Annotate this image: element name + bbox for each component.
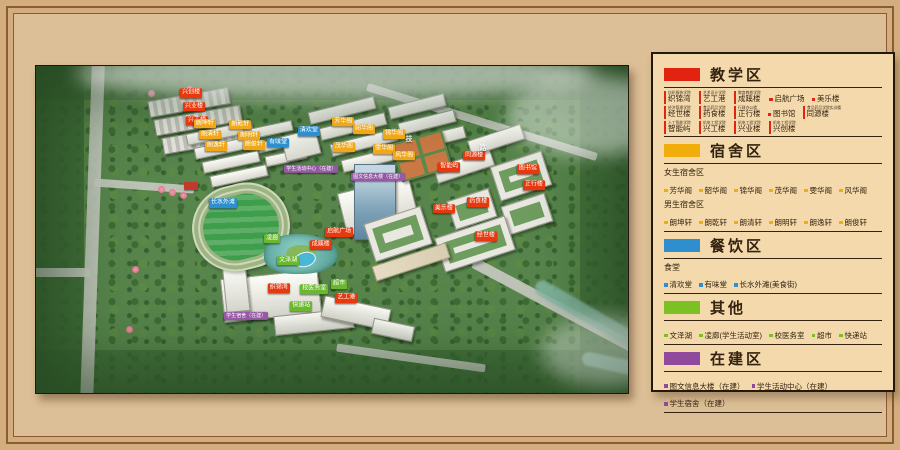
campus-map: 兴创楼兴业楼兴工楼朗坤轩朗乾轩朗清轩朗明轩朗逸轩朗俊轩芳华阁韶华阁锦华阁茂华阁雯… (35, 65, 629, 394)
legend-swatch-other (664, 301, 700, 314)
legend-tagged-row: 人工智能学院智能屿机电工程学院兴工楼机电工程学院兴业楼机电工程学院兴创楼 (664, 121, 882, 134)
legend-panel: 教学区纺织服装学院织锦湾艺术设计学院艺工港教育教养学院成蹊楼启航广场美乐楼经济管… (651, 52, 895, 392)
legend-item-bullet (769, 98, 773, 102)
map-label: 朗明轩 (238, 131, 260, 141)
legend-item: 清欢堂 (664, 279, 692, 290)
legend-item-bullet (664, 189, 668, 193)
legend-item-name: 有味堂 (705, 279, 728, 290)
legend-section-header-teaching: 教学区 (664, 64, 882, 85)
legend-item-caption: 纺织服装学院 (668, 91, 691, 95)
legend-item-bar (664, 91, 666, 104)
legend-item-name: 雯华阁 (810, 185, 833, 196)
legend-item: 朗逸轩 (804, 217, 832, 228)
legend-item: 机电工程学院兴工楼 (699, 121, 727, 134)
map-label: 快递站 (290, 301, 312, 311)
legend-item: 有味堂 (699, 279, 727, 290)
legend-item-col: 行政办公楼正行楼 (738, 106, 761, 119)
legend-item-caption: 机电工程学院 (703, 121, 726, 125)
legend-item-name: 清欢堂 (670, 279, 693, 290)
legend-item-name: 兴工楼 (703, 125, 727, 134)
legend-item-name: 芳华阁 (670, 185, 693, 196)
legend-bullet-list: 图文信息大楼（在建）学生活动中心（在建）学生宿舍（在建） (664, 375, 882, 410)
legend-item-bullet (664, 283, 668, 287)
legend-item-bullet (664, 221, 668, 225)
legend-item-caption: 食品药品学院实训楼 (807, 106, 841, 110)
legend-swatch-construction (664, 352, 700, 365)
map-label: 朗逸轩 (205, 141, 227, 151)
legend-rule (664, 231, 882, 232)
legend-item: 校医务室 (769, 330, 805, 341)
legend-item: 韶华阁 (699, 185, 727, 196)
map-label: 长水外滩 (209, 198, 237, 208)
legend-item-caption: 食品药品学院 (703, 106, 726, 110)
legend-item-bullet (768, 113, 772, 117)
map-label: 芳华阁 (332, 117, 354, 127)
legend-item: 经济管理学院经世楼 (664, 106, 692, 119)
map-label: 清欢堂 (298, 126, 320, 136)
legend-bullet-list: 文泽湖凌廊(学生活动室)校医务室超市快递站 (664, 324, 882, 342)
legend-item-col: 机电工程学院兴业楼 (738, 121, 762, 134)
legend-item: 风华阁 (839, 185, 867, 196)
legend-title-dining: 餐饮区 (710, 235, 764, 256)
legend-title-teaching: 教学区 (710, 64, 764, 85)
legend-item-bar (734, 106, 736, 119)
map-label: 兴业楼 (183, 102, 205, 112)
legend-item-name: 韶华阁 (705, 185, 728, 196)
legend-item-name: 成蹊楼 (738, 95, 762, 104)
legend-item-nm-wrap: 图书馆 (768, 110, 796, 119)
legend-item: 朗乾轩 (699, 217, 727, 228)
legend-item-name: 校医务室 (775, 330, 805, 341)
legend-title-dorm: 宿舍区 (710, 140, 764, 161)
legend-item-bar (769, 121, 771, 134)
legend-item-caption: 行政办公楼 (738, 106, 759, 110)
map-label: 朗清轩 (199, 130, 221, 140)
legend-item-bullet (804, 189, 808, 193)
map-label: 正行楼 (523, 180, 545, 190)
legend-item-col: 图书馆 (768, 110, 796, 119)
legend-item-bullet (812, 98, 816, 102)
map-label: 图书馆 (517, 164, 539, 174)
legend-item-name: 学生宿舍（在建） (670, 398, 730, 409)
legend-item-bar (699, 106, 701, 119)
legend-item-bullet (664, 334, 668, 338)
map-label: 锦华阁 (383, 129, 405, 139)
legend-item-name: 图书馆 (773, 110, 796, 119)
legend-item-bar (734, 91, 736, 104)
legend-item-name: 朗逸轩 (810, 217, 833, 228)
legend-item: 食品药品学院药食楼 (699, 106, 727, 119)
legend-item-bullet (699, 334, 703, 338)
legend-item: 图文信息大楼（在建） (664, 381, 745, 392)
legend-item-name: 智能屿 (668, 125, 692, 134)
road-name-char: 路 (479, 143, 486, 153)
legend-item-bullet (839, 221, 843, 225)
legend-item-bullet (699, 221, 703, 225)
legend-item-col: 教育教养学院成蹊楼 (738, 91, 762, 104)
legend-item-name: 正行楼 (738, 110, 761, 119)
map-label: 艺工港 (335, 293, 357, 303)
legend-item-name: 长水外滩(美食街) (740, 279, 798, 290)
legend-swatch-dorm (664, 144, 700, 157)
legend-item-bullet (839, 334, 843, 338)
legend-item-bullet (839, 189, 843, 193)
legend-title-other: 其他 (710, 297, 746, 318)
legend-item-caption: 艺术设计学院 (703, 91, 726, 95)
legend-item-bullet (804, 221, 808, 225)
legend-item-bullet (752, 384, 756, 388)
legend-swatch-teaching (664, 68, 700, 81)
map-label: 织锦湾 (268, 283, 290, 293)
legend-item: 文泽湖 (664, 330, 692, 341)
map-label: 凌廊 (264, 234, 280, 244)
legend-swatch-dining (664, 239, 700, 252)
legend-item-col: 人工智能学院智能屿 (668, 121, 692, 134)
legend-item-caption: 经济管理学院 (668, 106, 691, 110)
legend-item-name: 朗乾轩 (705, 217, 728, 228)
legend-item-name: 织锦湾 (668, 95, 692, 104)
legend-item-col: 纺织服装学院织锦湾 (668, 91, 692, 104)
legend-item-col: 美乐楼 (812, 95, 840, 104)
legend-item-name: 超市 (817, 330, 832, 341)
legend-item: 艺术设计学院艺工港 (699, 91, 727, 104)
map-label: 朗坤轩 (194, 119, 216, 129)
legend-item: 启航广场 (769, 95, 805, 104)
legend-bullet-list: 芳华阁韶华阁锦华阁茂华阁雯华阁风华阁 (664, 179, 882, 197)
legend-item-name: 茂华阁 (775, 185, 798, 196)
legend-section-header-construction: 在建区 (664, 348, 882, 369)
legend-item-bar (664, 121, 666, 134)
legend-item-bullet (664, 384, 668, 388)
legend-section-header-dining: 餐饮区 (664, 235, 882, 256)
legend-item: 教育教养学院成蹊楼 (734, 91, 762, 104)
legend-rule (664, 344, 882, 345)
legend-rule (664, 320, 882, 321)
legend-item-bar (664, 106, 666, 119)
legend-tagged-row: 纺织服装学院织锦湾艺术设计学院艺工港教育教养学院成蹊楼启航广场美乐楼 (664, 91, 882, 104)
map-label: 超市 (331, 279, 347, 289)
map-label: 兴创楼 (180, 88, 202, 98)
legend-item-bullet (769, 221, 773, 225)
map-label: 有味堂 (267, 138, 289, 148)
legend-item-col: 经济管理学院经世楼 (668, 106, 692, 119)
legend-item-caption: 机电工程学院 (773, 121, 796, 125)
map-label: 雯华阁 (373, 144, 395, 154)
legend-item-bar (734, 121, 736, 134)
map-label: 学生宿舍（在建） (224, 312, 268, 320)
map-label: 韶华阁 (353, 124, 375, 134)
legend-item-name: 朗坤轩 (670, 217, 693, 228)
legend-item: 纺织服装学院织锦湾 (664, 91, 692, 104)
legend-item: 美乐楼 (812, 95, 840, 104)
legend-item-name: 风华阁 (845, 185, 868, 196)
legend-item: 朗俊轩 (839, 217, 867, 228)
map-label: 经世楼 (475, 231, 497, 241)
map-label: 启航广场 (325, 227, 353, 237)
legend-item-bar (699, 91, 701, 104)
legend-item-nm-wrap: 美乐楼 (812, 95, 840, 104)
legend-group-label: 女生宿舍区 (664, 167, 882, 178)
legend-bullet-list: 朗坤轩朗乾轩朗清轩朗明轩朗逸轩朗俊轩 (664, 211, 882, 229)
road-name-char: 技 (405, 134, 412, 144)
legend-section-header-dorm: 宿舍区 (664, 140, 882, 161)
legend-item-bullet (812, 334, 816, 338)
legend-item-bullet (734, 189, 738, 193)
legend-item-name: 药食楼 (703, 110, 727, 119)
legend-item: 机电工程学院兴业楼 (734, 121, 762, 134)
legend-item-caption: 教育教养学院 (738, 91, 761, 95)
legend-item: 机电工程学院兴创楼 (769, 121, 797, 134)
map-label: 药食楼 (467, 197, 489, 207)
legend-item: 学生活动中心（在建） (752, 381, 833, 392)
legend-item: 雯华阁 (804, 185, 832, 196)
legend-item: 朗坤轩 (664, 217, 692, 228)
legend-item-nm-wrap: 启航广场 (769, 95, 805, 104)
legend-item-name: 经世楼 (668, 110, 692, 119)
legend-item-name: 文泽湖 (670, 330, 693, 341)
legend-item: 朗明轩 (769, 217, 797, 228)
legend-item-bullet (734, 221, 738, 225)
legend-rule (664, 87, 882, 88)
map-label: 茂华阁 (333, 142, 355, 152)
legend-rule (664, 163, 882, 164)
legend-item-bullet (699, 189, 703, 193)
legend-item-col: 食品药品学院实训楼同源楼 (807, 106, 843, 119)
legend-item-name: 兴创楼 (773, 125, 797, 134)
legend-item-name: 朗清轩 (740, 217, 763, 228)
legend-item-bar (803, 106, 805, 119)
map-label: 朗俊轩 (243, 140, 265, 150)
legend-item: 凌廊(学生活动室) (699, 330, 762, 341)
legend-group-label: 男生宿舍区 (664, 199, 882, 210)
legend-item: 茂华阁 (769, 185, 797, 196)
legend-item-col: 启航广场 (769, 95, 805, 104)
legend-item: 超市 (812, 330, 833, 341)
legend-section-header-other: 其他 (664, 297, 882, 318)
map-label: 朗乾轩 (229, 120, 251, 130)
legend-item: 锦华阁 (734, 185, 762, 196)
legend-item-name: 朗明轩 (775, 217, 798, 228)
map-label: 美乐楼 (433, 204, 455, 214)
legend-item-name: 同源楼 (807, 110, 843, 119)
legend-item: 行政办公楼正行楼 (734, 106, 761, 119)
legend-item-name: 凌廊(学生活动室) (705, 330, 763, 341)
legend-item-name: 美乐楼 (817, 95, 840, 104)
legend-item-col: 艺术设计学院艺工港 (703, 91, 727, 104)
legend-bullet-list: 清欢堂有味堂长水外滩(美食街) (664, 274, 882, 292)
legend-item-col: 食品药品学院药食楼 (703, 106, 727, 119)
map-label: 风华阁 (393, 151, 415, 161)
legend-item-bullet (664, 402, 668, 406)
legend-item-col: 机电工程学院兴工楼 (703, 121, 727, 134)
legend-item-bullet (699, 283, 703, 287)
legend-item-name: 锦华阁 (740, 185, 763, 196)
legend-item-bar (699, 121, 701, 134)
legend-rule (664, 412, 882, 413)
legend-item-name: 朗俊轩 (845, 217, 868, 228)
legend-item: 长水外滩(美食街) (734, 279, 797, 290)
map-label: 图文信息大楼（在建） (351, 173, 405, 181)
map-label: 学生活动中心（在建） (284, 165, 338, 173)
legend-rule (664, 371, 882, 372)
legend-item-name: 艺工港 (703, 95, 727, 104)
legend-item-name: 启航广场 (775, 95, 805, 104)
legend-group-label: 食堂 (664, 262, 882, 273)
legend-item: 人工智能学院智能屿 (664, 121, 692, 134)
legend-item-name: 快递站 (845, 330, 868, 341)
legend-title-construction: 在建区 (710, 348, 764, 369)
legend-item: 芳华阁 (664, 185, 692, 196)
legend-item-bullet (734, 283, 738, 287)
legend-rule (664, 293, 882, 294)
legend-rule (664, 136, 882, 137)
legend-item: 食品药品学院实训楼同源楼 (803, 106, 843, 119)
legend-item: 图书馆 (768, 110, 796, 119)
legend-item: 学生宿舍（在建） (664, 398, 730, 409)
legend-rule (664, 258, 882, 259)
legend-item-name: 图文信息大楼（在建） (670, 381, 745, 392)
legend-item-name: 兴业楼 (738, 125, 762, 134)
legend-item-caption: 机电工程学院 (738, 121, 761, 125)
legend-item-name: 学生活动中心（在建） (757, 381, 832, 392)
legend-item-bullet (769, 334, 773, 338)
legend-item-col: 机电工程学院兴创楼 (773, 121, 797, 134)
map-label: 智能屿 (438, 162, 460, 172)
legend-item-bullet (769, 189, 773, 193)
legend-tagged-row: 经济管理学院经世楼食品药品学院药食楼行政办公楼正行楼图书馆食品药品学院实训楼同源… (664, 106, 882, 119)
map-label: 成蹊楼 (310, 240, 332, 250)
legend-item-caption: 人工智能学院 (668, 121, 691, 125)
legend-item: 快递站 (839, 330, 867, 341)
map-label: 文泽湖 (277, 256, 299, 266)
legend-item: 朗清轩 (734, 217, 762, 228)
map-label: 校医务室 (300, 284, 328, 294)
